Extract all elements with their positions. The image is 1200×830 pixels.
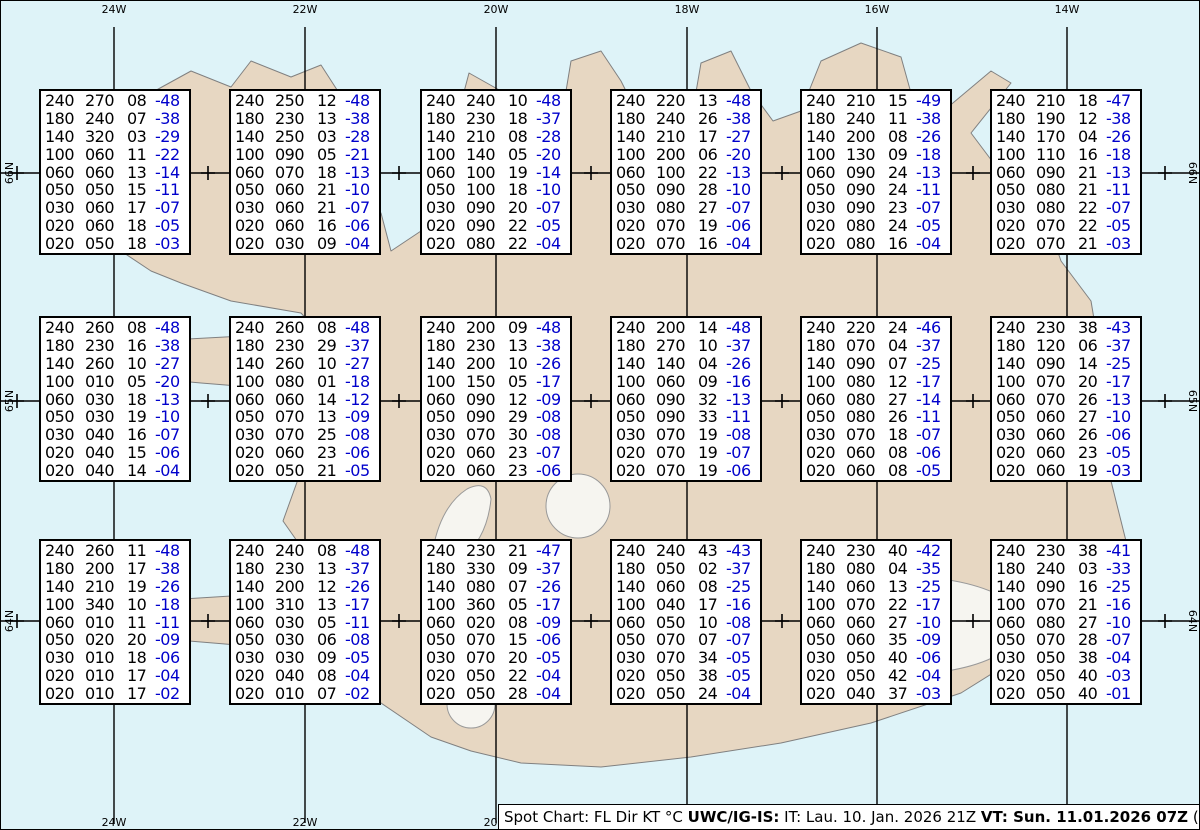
temp-value: -13 xyxy=(345,164,379,182)
temp-value: -04 xyxy=(155,667,189,685)
dir-value: 070 xyxy=(1036,631,1078,649)
dir-value: 090 xyxy=(466,391,508,409)
spot-row: 02007019-06 xyxy=(616,462,760,480)
temp-value: -48 xyxy=(536,319,570,337)
kt-value: 20 xyxy=(508,199,536,217)
kt-value: 09 xyxy=(698,373,726,391)
kt-value: 35 xyxy=(888,631,916,649)
dir-value: 020 xyxy=(466,614,508,632)
kt-value: 28 xyxy=(698,181,726,199)
spot-row: 14026010-27 xyxy=(235,355,379,373)
temp-value: -04 xyxy=(916,667,950,685)
kt-value: 23 xyxy=(508,462,536,480)
fl-value: 140 xyxy=(996,578,1036,596)
fl-value: 140 xyxy=(996,128,1036,146)
temp-value: -04 xyxy=(536,667,570,685)
fl-value: 020 xyxy=(235,444,275,462)
dir-value: 320 xyxy=(85,128,127,146)
temp-value: -05 xyxy=(155,217,189,235)
fl-value: 060 xyxy=(806,614,846,632)
fl-value: 060 xyxy=(996,164,1036,182)
spot-row: 18005002-37 xyxy=(616,560,760,578)
kt-value: 05 xyxy=(508,146,536,164)
temp-value: -17 xyxy=(1106,373,1140,391)
spot-row: 18033009-37 xyxy=(426,560,570,578)
lon-label-top-2: 20W xyxy=(478,3,514,16)
temp-value: -11 xyxy=(916,181,950,199)
fl-value: 240 xyxy=(996,542,1036,560)
temp-value: -46 xyxy=(916,319,950,337)
spot-row: 24022013-48 xyxy=(616,92,760,110)
temp-value: -18 xyxy=(155,596,189,614)
kt-value: 04 xyxy=(888,560,916,578)
temp-value: -37 xyxy=(536,560,570,578)
temp-value: -05 xyxy=(726,667,760,685)
temp-value: -25 xyxy=(916,355,950,373)
spot-row: 06005010-08 xyxy=(616,614,760,632)
temp-value: -38 xyxy=(345,110,379,128)
spot-row: 14025003-28 xyxy=(235,128,379,146)
dir-value: 060 xyxy=(846,631,888,649)
temp-value: -27 xyxy=(155,355,189,373)
spot-row: 05009033-11 xyxy=(616,408,760,426)
dir-value: 250 xyxy=(275,128,317,146)
dir-value: 060 xyxy=(85,146,127,164)
spot-row: 03007034-05 xyxy=(616,649,760,667)
spot-row: 24026011-48 xyxy=(45,542,189,560)
dir-value: 070 xyxy=(656,631,698,649)
kt-value: 08 xyxy=(698,578,726,596)
spot-row: 03007020-05 xyxy=(426,649,570,667)
dir-value: 070 xyxy=(656,444,698,462)
fl-value: 030 xyxy=(996,426,1036,444)
dir-value: 070 xyxy=(1036,235,1078,253)
fl-value: 030 xyxy=(806,649,846,667)
spot-row: 10001005-20 xyxy=(45,373,189,391)
dir-value: 090 xyxy=(656,408,698,426)
kt-value: 10 xyxy=(698,337,726,355)
fl-value: 020 xyxy=(616,217,656,235)
dir-value: 050 xyxy=(656,614,698,632)
dir-value: 020 xyxy=(85,631,127,649)
kt-value: 29 xyxy=(508,408,536,426)
fl-value: 060 xyxy=(806,164,846,182)
fl-value: 180 xyxy=(235,110,275,128)
dir-value: 070 xyxy=(275,408,317,426)
fl-value: 240 xyxy=(996,319,1036,337)
temp-value: -25 xyxy=(1106,578,1140,596)
dir-value: 030 xyxy=(275,649,317,667)
fl-value: 020 xyxy=(806,217,846,235)
fl-value: 030 xyxy=(235,649,275,667)
dir-value: 080 xyxy=(1036,181,1078,199)
spot-row: 14020008-26 xyxy=(806,128,950,146)
kt-value: 23 xyxy=(888,199,916,217)
fl-value: 140 xyxy=(45,128,85,146)
kt-value: 17 xyxy=(698,128,726,146)
spot-row: 02003009-04 xyxy=(235,235,379,253)
spot-row: 02005022-04 xyxy=(426,667,570,685)
spot-row: 14021019-26 xyxy=(45,578,189,596)
temp-value: -05 xyxy=(345,462,379,480)
spot-box-2-2: 24026008-4818023029-3714026010-271000800… xyxy=(229,316,381,482)
kt-value: 14 xyxy=(317,391,345,409)
dir-value: 240 xyxy=(656,110,698,128)
kt-value: 08 xyxy=(888,462,916,480)
lat-label-left-1: 65N xyxy=(4,386,16,416)
kt-value: 21 xyxy=(317,181,345,199)
caption-issue-time: IT: Lau. 10. Jan. 2026 21Z xyxy=(779,808,980,826)
dir-value: 090 xyxy=(656,391,698,409)
spot-row: 02005038-05 xyxy=(616,667,760,685)
temp-value: -06 xyxy=(345,444,379,462)
spot-row: 10011016-18 xyxy=(996,146,1140,164)
kt-value: 20 xyxy=(508,649,536,667)
kt-value: 24 xyxy=(888,319,916,337)
kt-value: 11 xyxy=(127,146,155,164)
temp-value: -08 xyxy=(726,426,760,444)
temp-value: -13 xyxy=(916,164,950,182)
fl-value: 020 xyxy=(806,685,846,703)
dir-value: 080 xyxy=(846,373,888,391)
temp-value: -10 xyxy=(536,181,570,199)
dir-value: 050 xyxy=(656,667,698,685)
temp-value: -13 xyxy=(726,391,760,409)
dir-value: 040 xyxy=(85,426,127,444)
temp-value: -02 xyxy=(155,685,189,703)
kt-value: 05 xyxy=(317,146,345,164)
temp-value: -48 xyxy=(345,542,379,560)
fl-value: 060 xyxy=(235,614,275,632)
fl-value: 100 xyxy=(806,146,846,164)
dir-value: 080 xyxy=(466,235,508,253)
fl-value: 020 xyxy=(45,685,85,703)
dir-value: 060 xyxy=(275,217,317,235)
spot-row: 02001007-02 xyxy=(235,685,379,703)
spot-box-1-3: 24024010-4818023018-3714021008-281001400… xyxy=(420,89,572,255)
spot-row: 14020010-26 xyxy=(426,355,570,373)
spot-row: 02007021-03 xyxy=(996,235,1140,253)
fl-value: 180 xyxy=(235,337,275,355)
spot-row: 02005042-04 xyxy=(806,667,950,685)
fl-value: 050 xyxy=(235,408,275,426)
fl-value: 020 xyxy=(806,462,846,480)
spot-row: 05009029-08 xyxy=(426,408,570,426)
temp-value: -04 xyxy=(1106,649,1140,667)
spot-box-1-5: 24021015-4918024011-3814020008-261001300… xyxy=(800,89,952,255)
lon-label-bottom-0: 24W xyxy=(96,816,132,829)
fl-value: 100 xyxy=(996,373,1036,391)
kt-value: 21 xyxy=(1078,181,1106,199)
spot-row: 03009020-07 xyxy=(426,199,570,217)
spot-row: 06010022-13 xyxy=(616,164,760,182)
fl-value: 140 xyxy=(806,578,846,596)
temp-value: -27 xyxy=(345,355,379,373)
fl-value: 240 xyxy=(45,92,85,110)
spot-row: 02007019-06 xyxy=(616,217,760,235)
dir-value: 260 xyxy=(275,319,317,337)
temp-value: -04 xyxy=(155,462,189,480)
kt-value: 26 xyxy=(888,408,916,426)
dir-value: 230 xyxy=(846,542,888,560)
spot-row: 10034010-18 xyxy=(45,596,189,614)
kt-value: 11 xyxy=(127,542,155,560)
dir-value: 200 xyxy=(275,578,317,596)
spot-row: 02005040-03 xyxy=(996,667,1140,685)
spot-box-1-2: 24025012-4818023013-3814025003-281000900… xyxy=(229,89,381,255)
fl-value: 020 xyxy=(616,235,656,253)
spot-row: 14006008-25 xyxy=(616,578,760,596)
dir-value: 060 xyxy=(1036,462,1078,480)
spot-row: 10008001-18 xyxy=(235,373,379,391)
temp-value: -38 xyxy=(726,110,760,128)
kt-value: 40 xyxy=(1078,685,1106,703)
spot-row: 24027008-48 xyxy=(45,92,189,110)
dir-value: 140 xyxy=(466,146,508,164)
fl-value: 030 xyxy=(426,649,466,667)
kt-value: 24 xyxy=(888,181,916,199)
spot-row: 10006011-22 xyxy=(45,146,189,164)
fl-value: 180 xyxy=(45,560,85,578)
temp-value: -06 xyxy=(536,462,570,480)
spot-box-1-6: 24021018-4718019012-3814017004-261001101… xyxy=(990,89,1142,255)
fl-value: 030 xyxy=(996,199,1036,217)
spot-row: 03004016-07 xyxy=(45,426,189,444)
dir-value: 080 xyxy=(846,560,888,578)
spot-row: 03009023-07 xyxy=(806,199,950,217)
temp-value: -43 xyxy=(1106,319,1140,337)
dir-value: 050 xyxy=(656,560,698,578)
spot-row: 02006016-06 xyxy=(235,217,379,235)
fl-value: 180 xyxy=(996,337,1036,355)
kt-value: 15 xyxy=(888,92,916,110)
temp-value: -06 xyxy=(536,631,570,649)
kt-value: 08 xyxy=(317,319,345,337)
spot-row: 14021008-28 xyxy=(426,128,570,146)
temp-value: -20 xyxy=(155,373,189,391)
kt-value: 22 xyxy=(1078,217,1106,235)
kt-value: 17 xyxy=(127,199,155,217)
temp-value: -38 xyxy=(916,110,950,128)
spot-row: 02005021-05 xyxy=(235,462,379,480)
dir-value: 090 xyxy=(466,199,508,217)
kt-value: 04 xyxy=(1078,128,1106,146)
dir-value: 090 xyxy=(1036,164,1078,182)
fl-value: 050 xyxy=(996,181,1036,199)
caption-offset: (+10 h) xyxy=(1188,808,1200,826)
spot-row: 24022024-46 xyxy=(806,319,950,337)
temp-value: -28 xyxy=(345,128,379,146)
kt-value: 17 xyxy=(127,560,155,578)
dir-value: 260 xyxy=(85,319,127,337)
kt-value: 28 xyxy=(508,685,536,703)
kt-value: 07 xyxy=(698,631,726,649)
spot-row: 14009014-25 xyxy=(996,355,1140,373)
temp-value: -06 xyxy=(155,649,189,667)
fl-value: 030 xyxy=(806,199,846,217)
dir-value: 070 xyxy=(1036,596,1078,614)
fl-value: 140 xyxy=(806,128,846,146)
temp-value: -10 xyxy=(155,408,189,426)
lat-label-right-1: 65N xyxy=(1186,386,1198,416)
kt-value: 38 xyxy=(1078,319,1106,337)
temp-value: -04 xyxy=(726,685,760,703)
kt-value: 14 xyxy=(1078,355,1106,373)
kt-value: 15 xyxy=(508,631,536,649)
fl-value: 180 xyxy=(806,110,846,128)
fl-value: 020 xyxy=(806,667,846,685)
kt-value: 23 xyxy=(317,444,345,462)
dir-value: 040 xyxy=(656,596,698,614)
dir-value: 200 xyxy=(656,146,698,164)
fl-value: 050 xyxy=(806,181,846,199)
kt-value: 18 xyxy=(127,217,155,235)
temp-value: -20 xyxy=(726,146,760,164)
kt-value: 40 xyxy=(888,542,916,560)
dir-value: 070 xyxy=(1036,217,1078,235)
kt-value: 08 xyxy=(888,128,916,146)
dir-value: 070 xyxy=(466,631,508,649)
temp-value: -35 xyxy=(916,560,950,578)
dir-value: 030 xyxy=(275,631,317,649)
fl-value: 050 xyxy=(45,408,85,426)
spot-row: 05008021-11 xyxy=(996,181,1140,199)
dir-value: 100 xyxy=(466,181,508,199)
kt-value: 21 xyxy=(1078,235,1106,253)
fl-value: 180 xyxy=(996,560,1036,578)
kt-value: 06 xyxy=(1078,337,1106,355)
kt-value: 29 xyxy=(317,337,345,355)
kt-value: 12 xyxy=(317,92,345,110)
fl-value: 240 xyxy=(806,542,846,560)
spot-row: 06003018-13 xyxy=(45,391,189,409)
fl-value: 240 xyxy=(806,92,846,110)
temp-value: -04 xyxy=(726,235,760,253)
kt-value: 26 xyxy=(1078,391,1106,409)
spot-row: 14008007-26 xyxy=(426,578,570,596)
kt-value: 19 xyxy=(508,164,536,182)
spot-row: 06008027-10 xyxy=(996,614,1140,632)
kt-value: 09 xyxy=(317,235,345,253)
spot-row: 06006014-12 xyxy=(235,391,379,409)
spot-row: 18023018-37 xyxy=(426,110,570,128)
fl-value: 020 xyxy=(806,235,846,253)
temp-value: -13 xyxy=(726,164,760,182)
spot-row: 14021017-27 xyxy=(616,128,760,146)
kt-value: 03 xyxy=(127,128,155,146)
temp-value: -13 xyxy=(1106,391,1140,409)
spot-row: 10006009-16 xyxy=(616,373,760,391)
temp-value: -26 xyxy=(1106,128,1140,146)
spot-row: 02006008-05 xyxy=(806,462,950,480)
lon-label-top-5: 14W xyxy=(1049,3,1085,16)
dir-value: 100 xyxy=(656,164,698,182)
kt-value: 05 xyxy=(127,373,155,391)
kt-value: 19 xyxy=(698,217,726,235)
kt-value: 16 xyxy=(127,337,155,355)
fl-value: 180 xyxy=(45,337,85,355)
spot-box-2-6: 24023038-4318012006-3714009014-251000702… xyxy=(990,316,1142,482)
fl-value: 240 xyxy=(235,319,275,337)
fl-value: 240 xyxy=(426,92,466,110)
fl-value: 100 xyxy=(996,596,1036,614)
temp-value: -05 xyxy=(1106,444,1140,462)
spot-row: 06003005-11 xyxy=(235,614,379,632)
dir-value: 070 xyxy=(656,217,698,235)
dir-value: 060 xyxy=(846,444,888,462)
spot-row: 18023013-37 xyxy=(235,560,379,578)
temp-value: -06 xyxy=(726,462,760,480)
dir-value: 190 xyxy=(1036,110,1078,128)
fl-value: 020 xyxy=(45,462,85,480)
temp-value: -10 xyxy=(1106,408,1140,426)
fl-value: 020 xyxy=(45,217,85,235)
dir-value: 010 xyxy=(85,667,127,685)
spot-row: 02007022-05 xyxy=(996,217,1140,235)
fl-value: 030 xyxy=(235,199,275,217)
fl-value: 020 xyxy=(996,685,1036,703)
fl-value: 240 xyxy=(616,319,656,337)
spot-row: 06001011-11 xyxy=(45,614,189,632)
temp-value: -18 xyxy=(345,373,379,391)
kt-value: 11 xyxy=(888,110,916,128)
kt-value: 18 xyxy=(127,391,155,409)
kt-value: 02 xyxy=(698,560,726,578)
glacier-hofsjokull xyxy=(546,474,610,538)
fl-value: 050 xyxy=(806,408,846,426)
dir-value: 360 xyxy=(466,596,508,614)
temp-value: -43 xyxy=(726,542,760,560)
spot-row: 02008016-04 xyxy=(806,235,950,253)
fl-value: 180 xyxy=(616,337,656,355)
spot-row: 05007015-06 xyxy=(426,631,570,649)
dir-value: 090 xyxy=(466,217,508,235)
temp-value: -11 xyxy=(155,614,189,632)
caption-valid-time: VT: Sun. 11.01.2026 07Z xyxy=(981,808,1188,826)
fl-value: 050 xyxy=(996,631,1036,649)
temp-value: -05 xyxy=(536,649,570,667)
temp-value: -11 xyxy=(345,614,379,632)
fl-value: 180 xyxy=(996,110,1036,128)
temp-value: -48 xyxy=(726,319,760,337)
dir-value: 230 xyxy=(275,337,317,355)
dir-value: 170 xyxy=(1036,128,1078,146)
fl-value: 140 xyxy=(235,128,275,146)
spot-row: 05007028-07 xyxy=(996,631,1140,649)
temp-value: -06 xyxy=(345,217,379,235)
spot-row: 10007020-17 xyxy=(996,373,1140,391)
spot-row: 06010019-14 xyxy=(426,164,570,182)
temp-value: -07 xyxy=(155,199,189,217)
kt-value: 13 xyxy=(317,408,345,426)
kt-value: 20 xyxy=(127,631,155,649)
fl-value: 100 xyxy=(45,596,85,614)
fl-value: 020 xyxy=(45,667,85,685)
kt-value: 37 xyxy=(888,685,916,703)
temp-value: -09 xyxy=(345,408,379,426)
dir-value: 060 xyxy=(656,373,698,391)
fl-value: 030 xyxy=(806,426,846,444)
dir-value: 050 xyxy=(1036,667,1078,685)
dir-value: 050 xyxy=(656,685,698,703)
spot-row: 05002020-09 xyxy=(45,631,189,649)
fl-value: 060 xyxy=(426,391,466,409)
temp-value: -47 xyxy=(536,542,570,560)
temp-value: -03 xyxy=(1106,235,1140,253)
spot-row: 02008022-04 xyxy=(426,235,570,253)
temp-value: -04 xyxy=(345,667,379,685)
kt-value: 21 xyxy=(1078,596,1106,614)
